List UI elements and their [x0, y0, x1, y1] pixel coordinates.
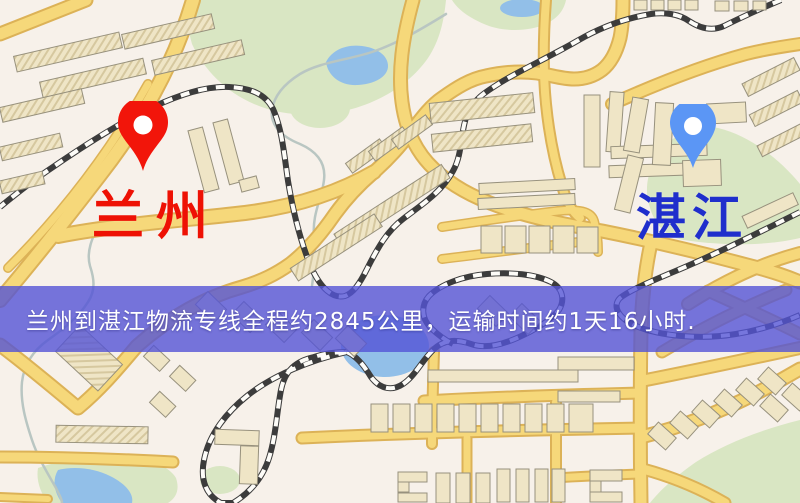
- map-background: [0, 0, 800, 503]
- destination-city-label: 湛江: [636, 178, 748, 250]
- origin-city-label: 兰州: [92, 174, 220, 249]
- origin-pin-icon: [116, 101, 170, 173]
- route-info-text: 兰州到湛江物流专线全程约2845公里，运输时间约1天16小时.: [0, 302, 696, 336]
- destination-pin-icon: [668, 104, 718, 170]
- destination-pin-shape: [670, 104, 716, 168]
- route-info-banner: 兰州到湛江物流专线全程约2845公里，运输时间约1天16小时.: [0, 286, 800, 352]
- origin-pin[interactable]: [116, 101, 170, 177]
- origin-pin-shape: [118, 101, 168, 171]
- logistics-route-map: 兰州 湛江 兰州到湛江物流专线全程约2845公里，运输时间约1天16小时.: [0, 0, 800, 503]
- destination-pin[interactable]: [668, 104, 718, 174]
